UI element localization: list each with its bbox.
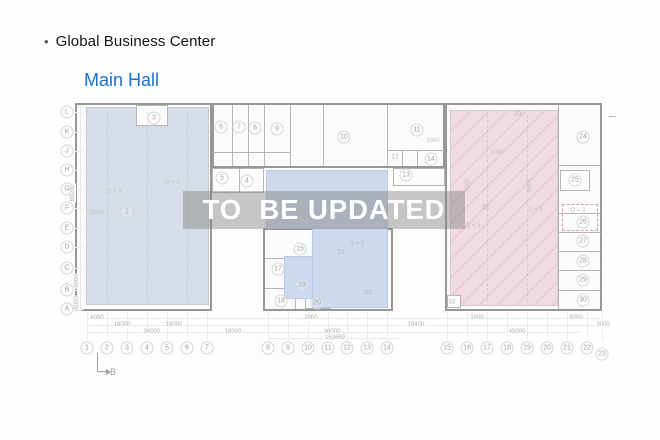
room-number: 4	[241, 175, 254, 188]
wall	[290, 105, 291, 166]
grid-col-label: 5	[161, 342, 174, 355]
room-number: 5	[216, 172, 229, 185]
room-number: 10	[338, 131, 351, 144]
room-number: 12	[391, 154, 398, 161]
bullet-icon: •	[44, 34, 49, 49]
grid-col-tick	[387, 312, 388, 341]
dimension-label: 6000	[74, 295, 80, 310]
grid-col-tick	[288, 312, 289, 341]
grid-col-label: 20	[541, 342, 554, 355]
north-dash-mark	[609, 116, 616, 117]
room-number: 8	[249, 122, 262, 135]
grid-col-tick	[147, 312, 148, 341]
grid-col-label: 22	[581, 342, 594, 355]
grid-row-label: B	[61, 284, 74, 297]
wall	[387, 150, 445, 151]
grid-col-tick	[268, 312, 269, 341]
grid-row-tick	[74, 290, 84, 291]
grid-col-label: 19	[521, 342, 534, 355]
section-marker-label: B	[110, 367, 116, 377]
grid-col-tick	[447, 312, 448, 341]
grid-row-tick	[74, 268, 84, 269]
room-number: 11	[411, 124, 424, 137]
room-number: 28	[577, 255, 590, 268]
wall	[558, 251, 601, 252]
wall	[417, 150, 418, 166]
room-number: 13	[400, 169, 413, 182]
grid-row-tick	[74, 170, 84, 171]
room-number: 23	[514, 111, 521, 118]
room-number: 3	[148, 112, 161, 125]
wall	[558, 165, 601, 166]
grid-row-tick	[74, 208, 84, 209]
annex-zone-notch[interactable]	[284, 256, 313, 299]
grid-col-label: 1	[81, 342, 94, 355]
grid-col-tick	[187, 312, 188, 341]
breadcrumb: • Global Business Center	[44, 33, 215, 50]
wall	[558, 105, 559, 309]
dimension-label: 60000	[70, 184, 76, 203]
grid-col-label: 9	[282, 342, 295, 355]
annex-zone-lower[interactable]	[312, 228, 388, 308]
dimension-label: 18000	[224, 329, 243, 335]
annotation-label: Q = 3	[350, 241, 365, 247]
wall	[387, 105, 388, 166]
grid-col-label: 12	[341, 342, 354, 355]
hall-gridline	[147, 112, 148, 302]
room-number: 27	[577, 235, 590, 248]
grid-col-tick	[527, 312, 528, 341]
grid-col-label: 3	[121, 342, 134, 355]
grid-row-tick	[74, 112, 84, 113]
wall	[264, 105, 265, 166]
grid-row-tick	[74, 247, 84, 248]
wall	[248, 105, 249, 166]
grid-row-label: L	[61, 106, 74, 119]
grid-row-tick	[74, 228, 84, 229]
dimension-label: 18000	[165, 322, 184, 328]
wall	[558, 232, 601, 233]
grid-col-label: 18	[501, 342, 514, 355]
wall	[402, 150, 403, 166]
grid-col-label: 21	[561, 342, 574, 355]
room-number: 21	[337, 249, 344, 256]
grid-row-label: C	[61, 262, 74, 275]
grid-row-label: J	[61, 145, 74, 158]
room-number: 22	[364, 289, 371, 296]
grid-col-label: 15	[441, 342, 454, 355]
room-number: 6	[215, 121, 228, 134]
grid-col-label: 16	[461, 342, 474, 355]
room-number: 26	[577, 216, 590, 229]
hall-gridline	[107, 112, 108, 302]
grid-col-tick	[507, 312, 508, 341]
room-number: 15	[294, 243, 307, 256]
annotation-label: 6000	[465, 178, 471, 191]
annotation-label: 1000	[490, 150, 503, 156]
room-number: 24	[577, 131, 590, 144]
dimension-label: 3000	[595, 322, 610, 328]
grid-col-label: 6	[181, 342, 194, 355]
room-number: 29	[577, 274, 590, 287]
grid-col-tick	[87, 312, 88, 341]
annotation-label: G + 3	[107, 189, 122, 195]
room-number: 7	[233, 121, 246, 134]
wall	[558, 290, 601, 291]
wall	[232, 105, 233, 166]
wall	[212, 152, 290, 153]
room-number: 20	[311, 297, 324, 310]
dim-line	[87, 318, 600, 319]
dimension-label: 1000	[469, 315, 484, 321]
annotation-label: Q = 3	[571, 208, 586, 214]
annotation-label: 2000	[90, 210, 103, 216]
watermark-text: TO BE UPDATED	[186, 191, 462, 229]
annotation-label: 6000	[527, 178, 533, 191]
room-number: 25	[569, 174, 582, 187]
grid-row-tick	[74, 132, 84, 133]
room-number: 9	[271, 123, 284, 136]
annotation-label: Q = 3	[528, 207, 543, 213]
annotation-label: G + 3	[165, 180, 180, 186]
dimension-label: 6000	[74, 273, 80, 288]
grid-row-label: F	[61, 202, 74, 215]
grid-col-tick	[467, 312, 468, 341]
grid-col-tick	[347, 312, 348, 341]
grid-col-label: 11	[322, 342, 335, 355]
section-marker-line	[97, 353, 98, 372]
grid-row-label: D	[61, 241, 74, 254]
grid-row-tick	[74, 151, 84, 152]
grid-col-label: 13	[361, 342, 374, 355]
app-canvas: • Global Business Center Main Hall	[0, 0, 660, 440]
grid-col-tick	[547, 312, 548, 341]
dimension-label: 18400	[407, 322, 426, 328]
room-number: 32	[448, 299, 455, 306]
grid-col-label: 2	[101, 342, 114, 355]
grid-col-tick	[587, 312, 588, 341]
hall-title-link[interactable]: Main Hall	[84, 70, 159, 91]
grid-col-tick	[107, 312, 108, 341]
grid-col-label: 4	[141, 342, 154, 355]
room-number: 17	[272, 263, 285, 276]
grid-col-label: 17	[481, 342, 494, 355]
dimension-label: 6000	[89, 315, 104, 321]
grid-row-label: H	[61, 164, 74, 177]
grid-col-label: 23	[596, 348, 609, 361]
dimension-label: 18000	[113, 322, 132, 328]
room-number: 19	[296, 279, 309, 292]
wall	[323, 105, 324, 166]
grid-col-tick	[487, 312, 488, 341]
dimension-label: 153669	[324, 335, 346, 341]
grid-row-label: K	[61, 126, 74, 139]
room-number: 18	[275, 295, 288, 308]
wall	[558, 270, 601, 271]
annotation-label: 1000	[426, 138, 439, 144]
grid-col-tick	[367, 312, 368, 341]
grid-row-label: E	[61, 222, 74, 235]
dimension-label: 45000	[508, 329, 527, 335]
room-number: 14	[425, 153, 438, 166]
dimension-label: 6000	[568, 315, 583, 321]
dimension-label: 36000	[143, 329, 162, 335]
grid-col-label: 10	[302, 342, 315, 355]
page-title: Global Business Center	[56, 33, 216, 50]
room-number: 31	[482, 204, 489, 211]
top-strip-outline	[212, 103, 445, 168]
grid-col-tick	[207, 312, 208, 341]
annotation-label: Q = 3	[466, 223, 481, 229]
room-number: 2	[121, 206, 134, 219]
grid-col-label: 8	[262, 342, 275, 355]
dimension-label: 2000	[303, 315, 318, 321]
grid-col-label: 7	[201, 342, 214, 355]
grid-col-label: 14	[381, 342, 394, 355]
grid-row-label: A	[61, 303, 74, 316]
room-number: 30	[577, 294, 590, 307]
